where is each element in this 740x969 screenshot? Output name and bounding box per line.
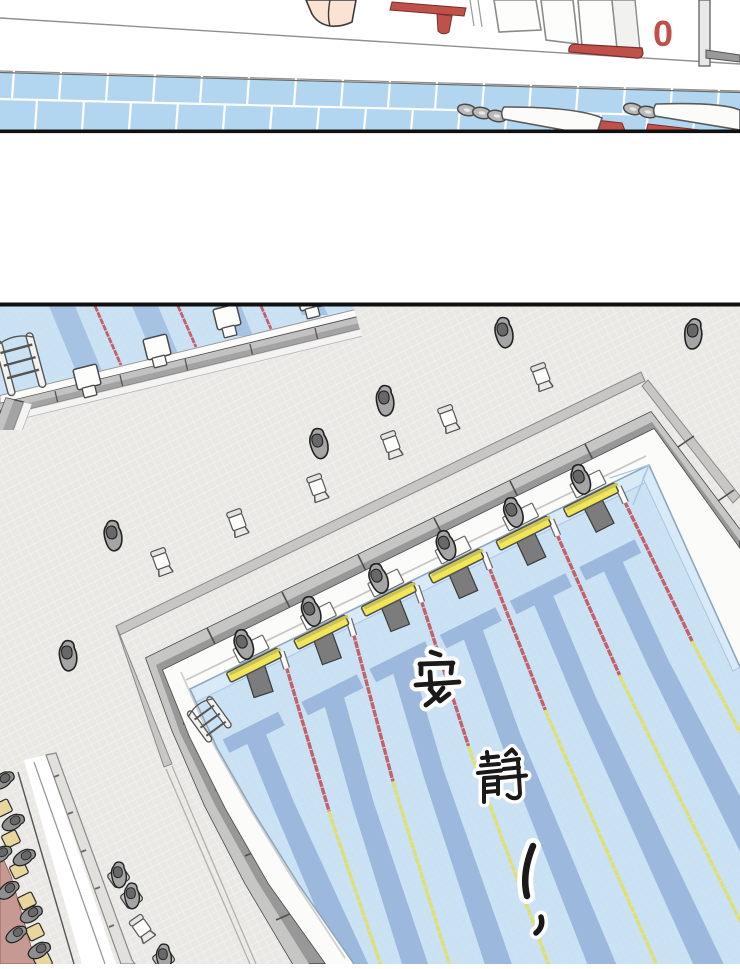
svg-text:0: 0	[653, 13, 673, 54]
